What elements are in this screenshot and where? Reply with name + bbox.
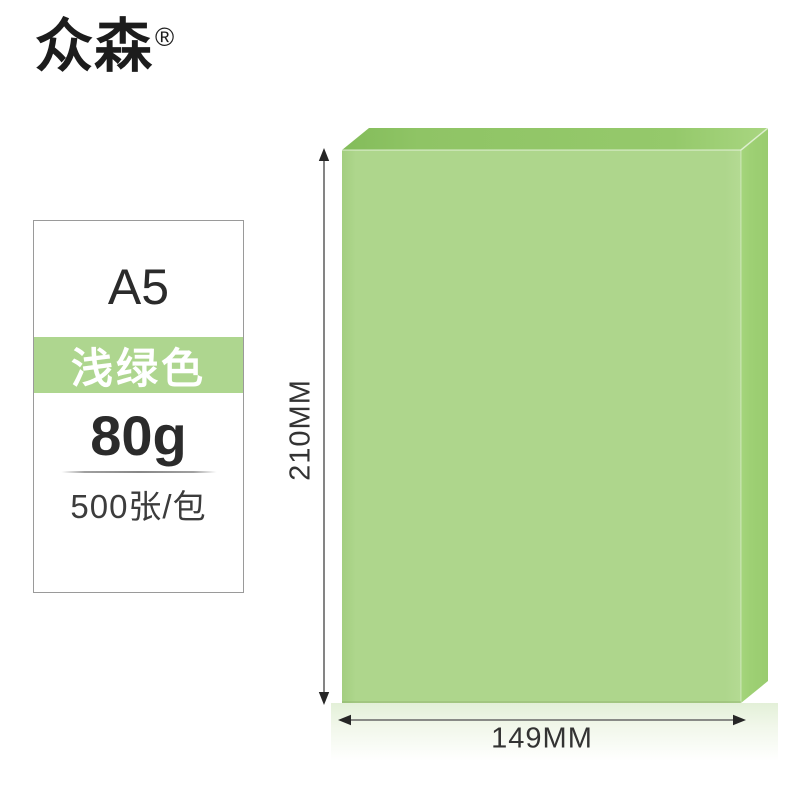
- paper-top-face: [342, 128, 768, 150]
- paper-weight-label: 80g: [34, 407, 243, 465]
- registered-trademark-icon: ®: [155, 22, 174, 53]
- product-image: 210MM 149MM 众森 ® A5 浅绿色 80g 500张/包: [0, 0, 800, 800]
- brand-name: 众森: [35, 14, 153, 81]
- width-dimension-label: 149MM: [491, 723, 593, 756]
- paper-ream: [342, 128, 768, 703]
- color-name-label: 浅绿色: [71, 335, 206, 396]
- arrow-left-icon: [338, 715, 351, 725]
- paper-front-face: [342, 150, 741, 703]
- arrow-down-icon: [319, 692, 329, 705]
- height-dimension-label: 210MM: [285, 379, 318, 481]
- divider: [61, 471, 216, 473]
- color-name-band: 浅绿色: [34, 337, 243, 393]
- arrow-up-icon: [319, 148, 329, 161]
- paper-side-face: [741, 128, 768, 703]
- sheet-count-label: 500张/包: [34, 487, 243, 527]
- product-info-card: A5 浅绿色 80g 500张/包: [33, 220, 244, 593]
- arrow-right-icon: [733, 715, 746, 725]
- paper-size-label: A5: [34, 261, 243, 313]
- brand-logo: 众森 ®: [35, 14, 174, 81]
